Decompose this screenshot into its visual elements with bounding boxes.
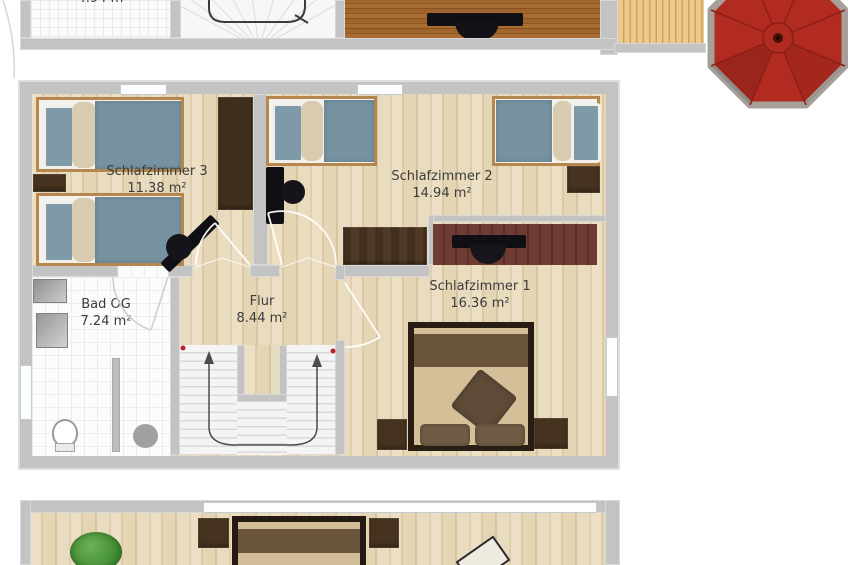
plant-icon (70, 532, 122, 565)
bed-blanket-bar (238, 529, 360, 553)
nightstand (369, 518, 399, 548)
lower-floor-partial (0, 0, 848, 565)
nightstand (198, 518, 229, 548)
wall-segment (605, 500, 620, 565)
wall-segment (20, 500, 31, 565)
window-band (203, 502, 597, 513)
floorplan-canvas: 4.94 m² (0, 0, 848, 565)
double-bed (232, 516, 366, 565)
